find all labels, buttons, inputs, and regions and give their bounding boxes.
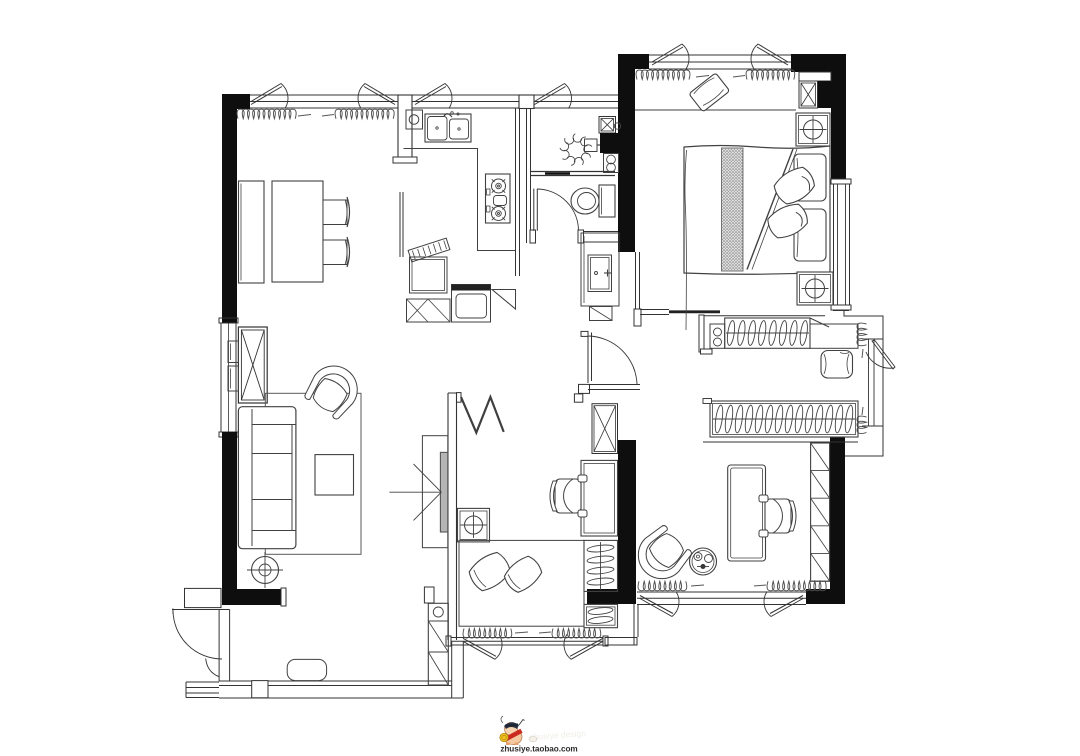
svg-text:zhusiye.taobao.com: zhusiye.taobao.com [500, 745, 577, 754]
